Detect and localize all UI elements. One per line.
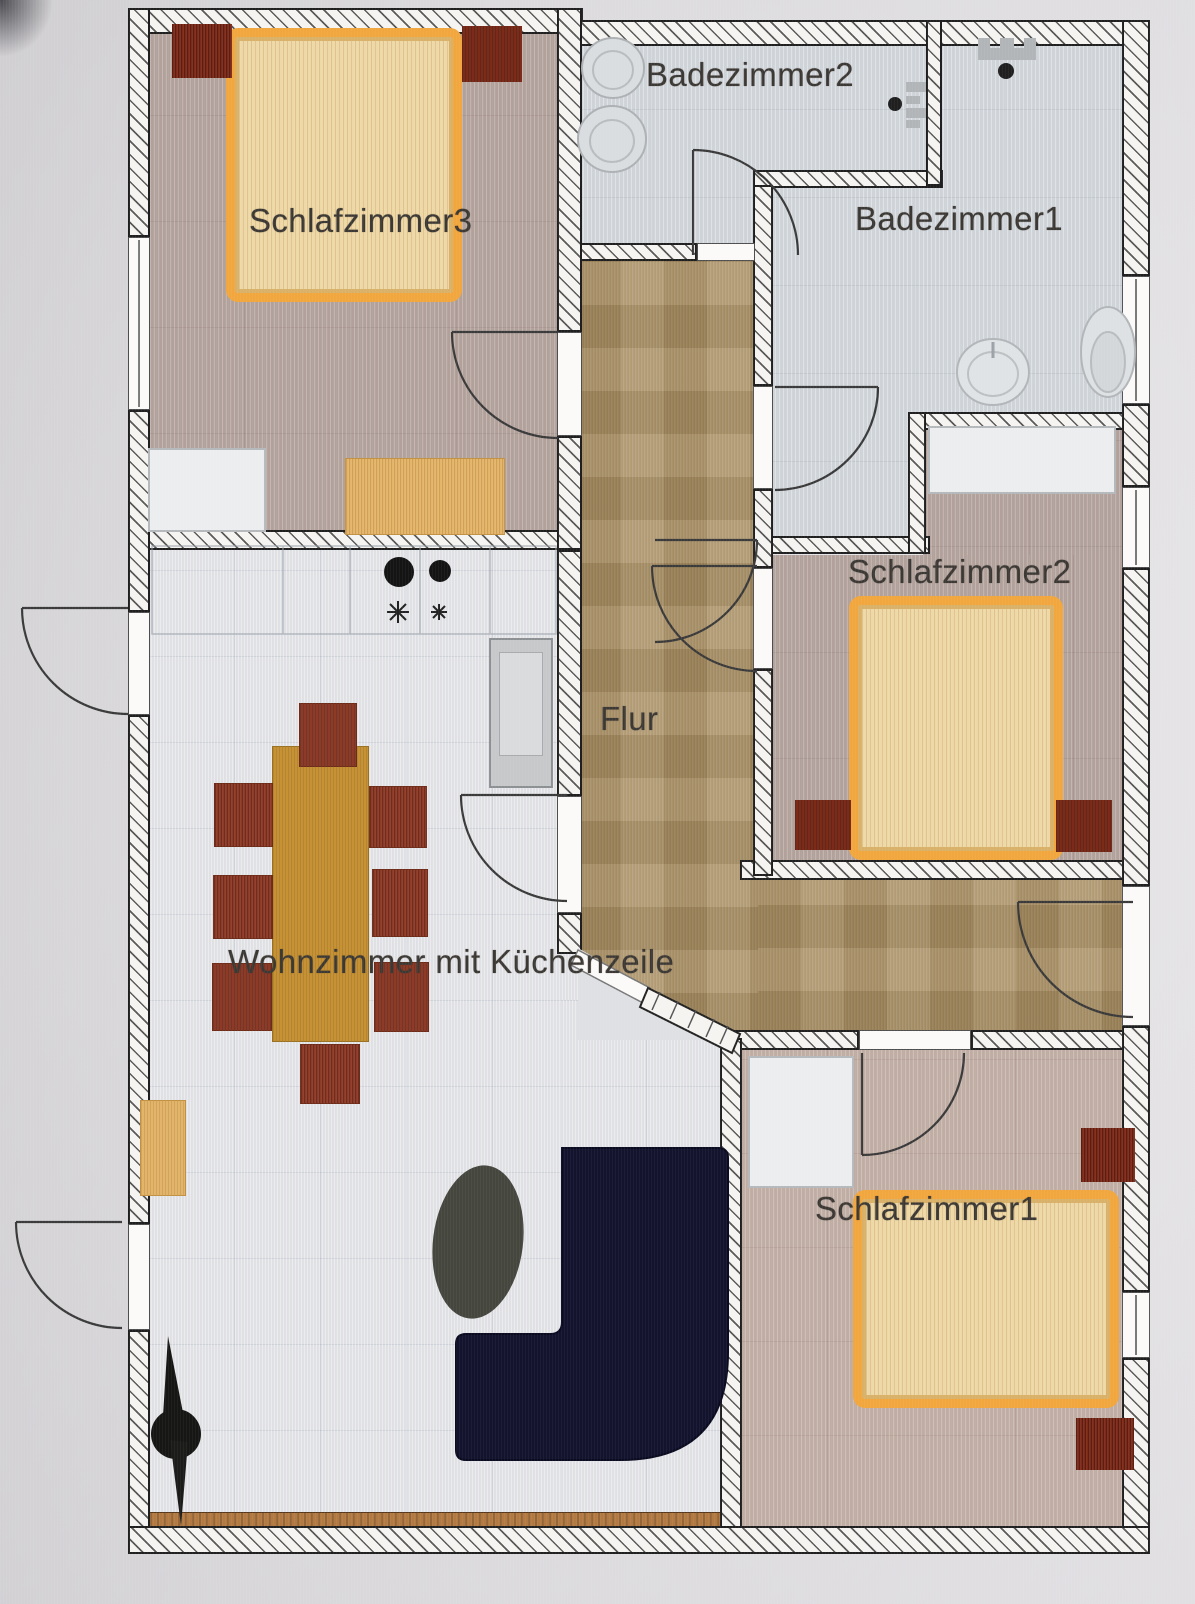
toilet-badezimmer2[interactable] (582, 38, 644, 98)
bed-schlafzimmer3[interactable] (226, 28, 462, 302)
nightstand-s1-bottom[interactable] (1076, 1418, 1134, 1470)
plant[interactable] (151, 1336, 201, 1526)
nightstand-s1-top[interactable] (1081, 1128, 1135, 1182)
wardrobe-schlafzimmer2[interactable] (928, 426, 1116, 494)
sideboard-wohnzimmer[interactable] (140, 1100, 186, 1196)
dining-table[interactable] (272, 746, 369, 1042)
room-label-badezimmer1: Badezimmer1 (855, 201, 1063, 237)
room-label-schlafzimmer3: Schlafzimmer3 (249, 203, 472, 239)
chair-left-2[interactable] (213, 875, 273, 939)
dresser-s3-tan[interactable] (345, 458, 505, 535)
washbasin-badezimmer2[interactable] (888, 82, 926, 128)
fridge[interactable] (489, 638, 553, 788)
chair-right-2[interactable] (372, 869, 428, 937)
door-arc-schlafzimmer1[interactable] (862, 1053, 964, 1155)
bidet-badezimmer2[interactable] (578, 106, 646, 172)
chair-bottom[interactable] (300, 1044, 360, 1104)
door-arc-balcony-north[interactable] (22, 608, 128, 714)
door-arc-flur-east[interactable] (1018, 902, 1133, 1017)
stove-burner-icons[interactable] (387, 601, 447, 623)
bed-schlafzimmer2[interactable] (849, 596, 1063, 860)
room-label-flur: Flur (600, 701, 658, 737)
room-label-schlafzimmer1: Schlafzimmer1 (815, 1191, 1038, 1227)
nightstand-s3-right[interactable] (462, 26, 522, 82)
dresser-s3-white[interactable] (148, 448, 266, 532)
nightstand-s3-left[interactable] (172, 24, 232, 78)
nightstand-s2-left[interactable] (795, 800, 851, 850)
door-arc-badezimmer1[interactable] (775, 387, 878, 490)
chair-right-1[interactable] (369, 786, 427, 848)
armchair-oval[interactable] (424, 1160, 532, 1324)
door-arc-wohnzimmer[interactable] (461, 795, 567, 901)
chair-left-1[interactable] (214, 783, 273, 847)
door-arc-balcony-south[interactable] (16, 1222, 122, 1328)
room-label-wohnzimmer: Wohnzimmer mit Küchenzeile (228, 944, 674, 980)
floor-plan-photo: Schlafzimmer3 Badezimmer2 Badezimmer1 Sc… (0, 0, 1195, 1604)
room-label-schlafzimmer2: Schlafzimmer2 (848, 554, 1071, 590)
toilet-badezimmer1[interactable] (1081, 307, 1135, 397)
room-label-badezimmer2: Badezimmer2 (646, 57, 854, 93)
chair-top[interactable] (299, 703, 357, 767)
kitchen-counter[interactable] (152, 546, 556, 634)
door-arc-schlafzimmer2[interactable] (652, 566, 757, 671)
closet-schlafzimmer1[interactable] (748, 1056, 854, 1188)
washbasin-badezimmer1-north[interactable] (978, 38, 1036, 79)
washbasin-badezimmer1[interactable] (957, 339, 1029, 405)
door-arc-badezimmer2[interactable] (693, 150, 798, 255)
nightstand-s2-right[interactable] (1056, 800, 1112, 852)
door-arc-schlafzimmer3[interactable] (452, 332, 558, 438)
sink-basin-small[interactable] (429, 560, 451, 582)
sink-basin-large[interactable] (384, 557, 414, 587)
